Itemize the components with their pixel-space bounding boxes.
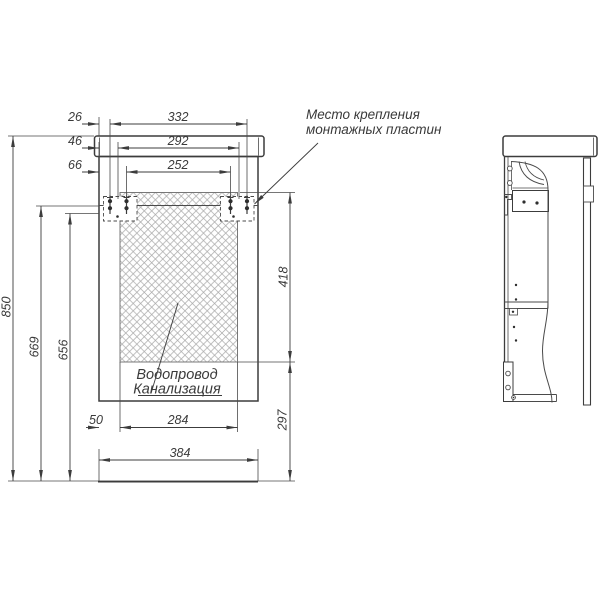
dim-332: 332 <box>168 110 189 124</box>
pin-dot <box>116 215 119 218</box>
hook-dot <box>505 196 507 198</box>
shelf-pin-dot <box>515 298 517 300</box>
inner-corner-arc <box>511 162 548 191</box>
dim-669: 669 <box>28 337 42 358</box>
dim-66: 66 <box>68 158 82 172</box>
plate-screw-dot <box>522 200 525 203</box>
screw-dot <box>108 206 112 210</box>
side-panel-curve <box>543 190 553 403</box>
bracket-dot <box>512 311 514 313</box>
screw-dot <box>228 206 232 210</box>
pin-dot <box>232 215 235 218</box>
side-view <box>503 136 597 405</box>
dim-46: 46 <box>68 134 82 148</box>
door-hinge-block <box>584 186 594 202</box>
back-hole <box>507 166 512 171</box>
dim-292: 292 <box>167 134 189 148</box>
dim-252: 252 <box>167 158 189 172</box>
screw-dot <box>124 199 128 203</box>
utility-label-line2: Канализация <box>133 382 221 398</box>
mounting-note-line2: монтажных пластин <box>306 122 442 137</box>
dim-26: 26 <box>67 110 82 124</box>
screw-dot <box>124 206 128 210</box>
plate-screw-dot <box>535 201 538 204</box>
shelf-pin-dot <box>513 326 515 328</box>
dim-50: 50 <box>89 413 103 427</box>
mounting-plate-left <box>104 196 138 222</box>
mounting-plate-side <box>513 191 549 212</box>
back-hole <box>507 181 512 186</box>
countertop-side <box>503 136 597 157</box>
dim-384: 384 <box>170 446 191 460</box>
screw-dot <box>245 199 249 203</box>
mounting-plate-right <box>221 196 255 222</box>
drawing-canvas: 26 332 46 292 66 252 50 284 384 850 669 … <box>0 0 600 600</box>
shelf-section <box>505 302 549 309</box>
shelf-pin-dot <box>515 339 517 341</box>
dim-418: 418 <box>277 267 291 288</box>
bracket-hole <box>506 385 511 390</box>
dim-297: 297 <box>276 409 290 432</box>
screw-dot <box>228 199 232 203</box>
bottom-bracket <box>504 362 514 402</box>
shelf-pin-dot <box>515 284 517 286</box>
screw-dot <box>245 206 249 210</box>
bottom-screw-center <box>513 397 515 399</box>
dim-656: 656 <box>57 340 71 361</box>
screw-dot <box>108 199 112 203</box>
bracket-hole <box>506 371 511 376</box>
dim-850: 850 <box>0 297 14 318</box>
utility-hatch-zone <box>120 193 238 363</box>
dim-284: 284 <box>167 413 189 427</box>
technical-drawing: 26 332 46 292 66 252 50 284 384 850 669 … <box>0 0 600 600</box>
mounting-note-line1: Место крепления <box>306 107 420 122</box>
front-view: 26 332 46 292 66 252 50 284 384 850 669 … <box>0 107 442 482</box>
